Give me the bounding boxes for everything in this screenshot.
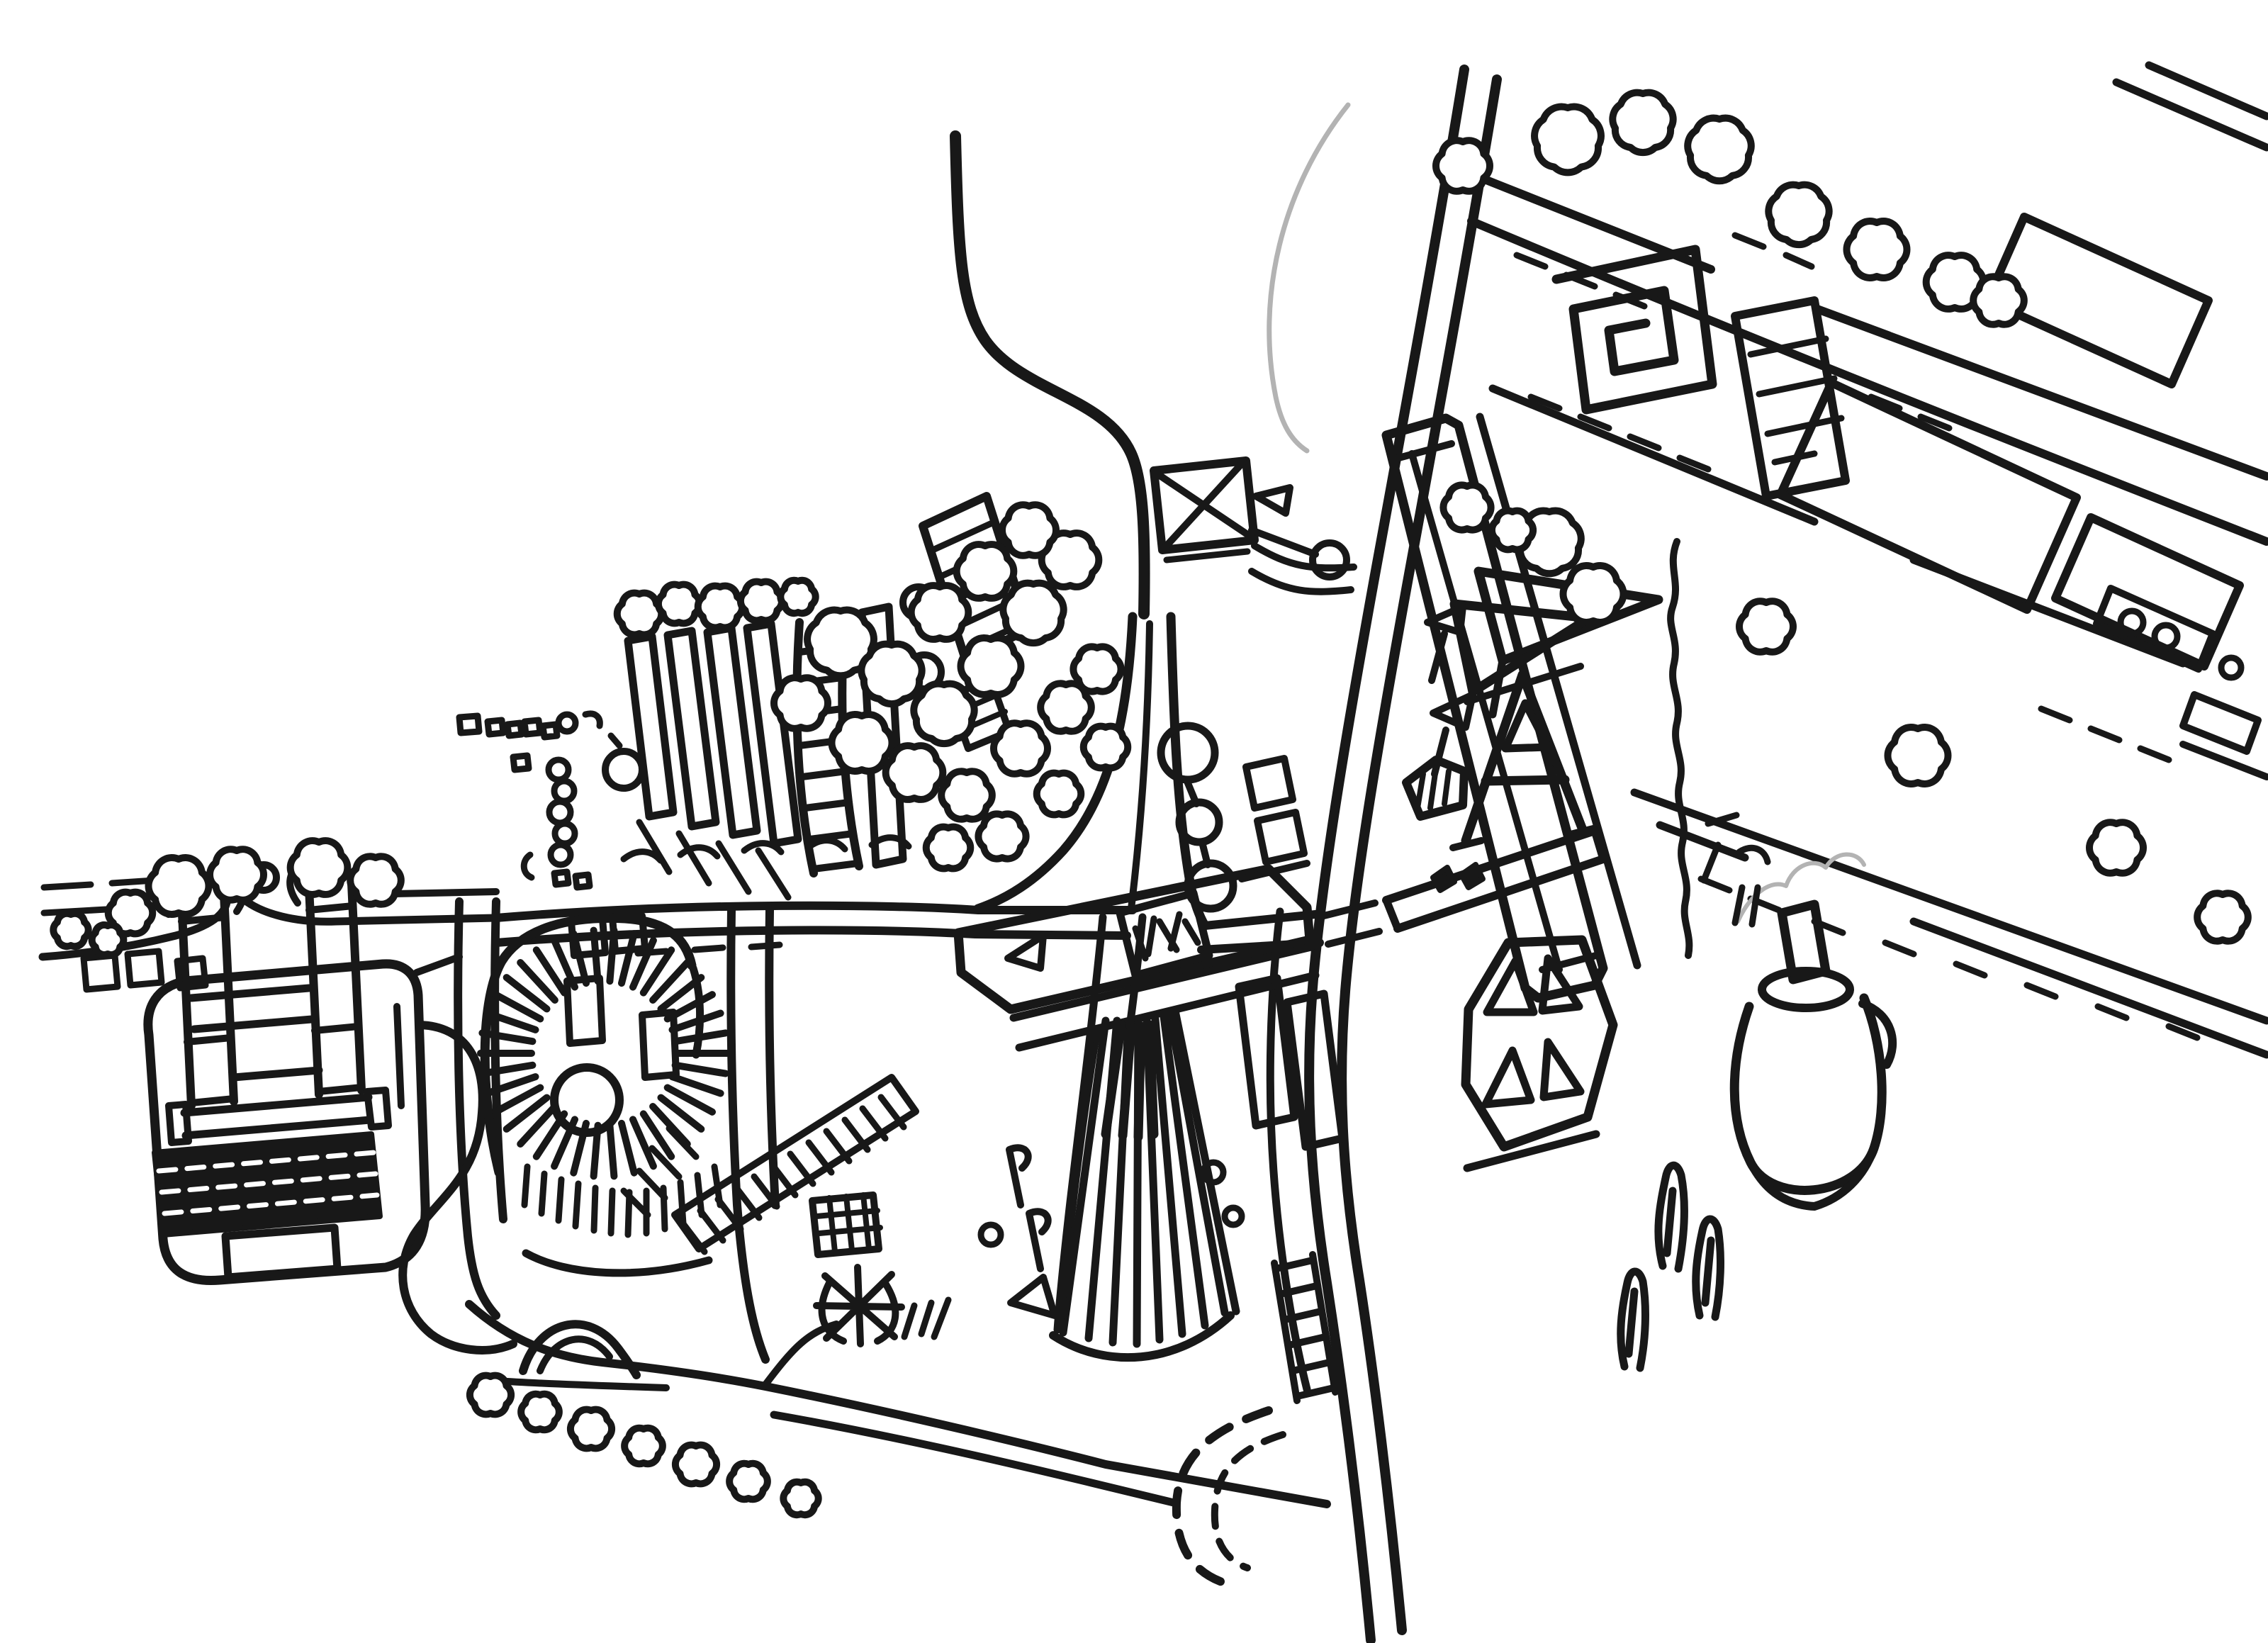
- cluster-bottom-marks: [812, 1148, 1055, 1344]
- treeline-wiggle: [1671, 542, 1689, 955]
- compound-building: [148, 862, 459, 1281]
- doodle-chain: [459, 714, 619, 887]
- faint-pencil-arc: [1269, 105, 1348, 451]
- bottom-bush-row: [470, 1376, 819, 1515]
- storage-tank: [1734, 854, 1892, 1206]
- road-inner-vertical: [731, 910, 775, 1359]
- district-hatch-dashes: [1517, 235, 2197, 1038]
- pinwheel-pavilion: [1466, 940, 1613, 1168]
- hexagon-house: [1406, 760, 1464, 817]
- road-bottom-hook: [1177, 1411, 1283, 1585]
- sketch-canvas: [0, 0, 2268, 1643]
- central-foliage: [774, 505, 1128, 868]
- gate-x-building: [1154, 461, 1347, 577]
- building-square-spiral: [1556, 249, 1712, 410]
- side-rect-buildings: [1242, 758, 1307, 879]
- circle-pavilion: [481, 916, 727, 1273]
- cypress-trees: [1621, 1165, 1721, 1368]
- bar-row-trees: [617, 581, 816, 635]
- map-page: [0, 0, 2268, 1643]
